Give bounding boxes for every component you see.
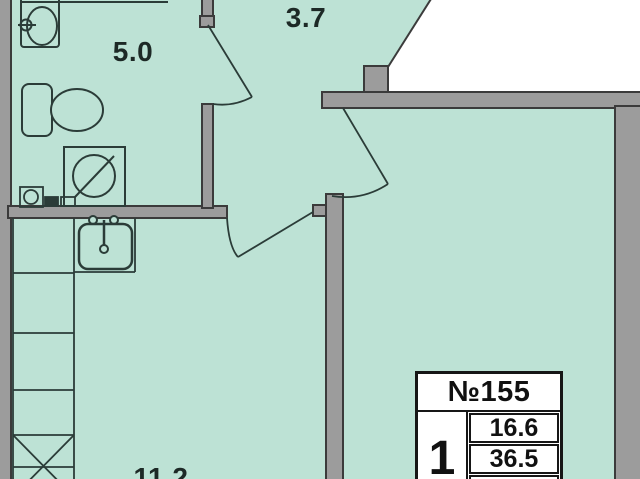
wall-right-outer	[615, 106, 640, 479]
total-area-value: 36.5	[469, 444, 559, 474]
wall-room-west	[326, 194, 343, 479]
room-count: 1	[418, 412, 468, 479]
wall-bathroom-door-jamb	[200, 16, 214, 27]
living-area-value: 16.6	[469, 413, 559, 443]
wall-pillar	[364, 66, 388, 93]
extra-area-value: 34.5	[469, 475, 559, 479]
wall-left-outer	[0, 0, 11, 479]
wall-kitchen-door-jamb	[313, 205, 327, 216]
outside-area	[388, 0, 640, 92]
toilet-icon	[22, 84, 103, 136]
apartment-number: №155	[418, 374, 560, 412]
apartment-info-table: №155 1 16.6 36.5 34.5	[415, 371, 563, 479]
floor-plan: 5.0 3.7 11.2 №155 1 16.6 36.5 34.5	[0, 0, 640, 479]
wall-bathroom-right-lower	[202, 104, 213, 208]
area-values: 16.6 36.5 34.5	[468, 412, 560, 479]
wall-room-top	[322, 92, 640, 108]
room-label-kitchen-living: 11.2	[124, 464, 198, 479]
room-label-hallway: 3.7	[275, 4, 337, 32]
room-label-bathroom: 5.0	[102, 38, 164, 66]
